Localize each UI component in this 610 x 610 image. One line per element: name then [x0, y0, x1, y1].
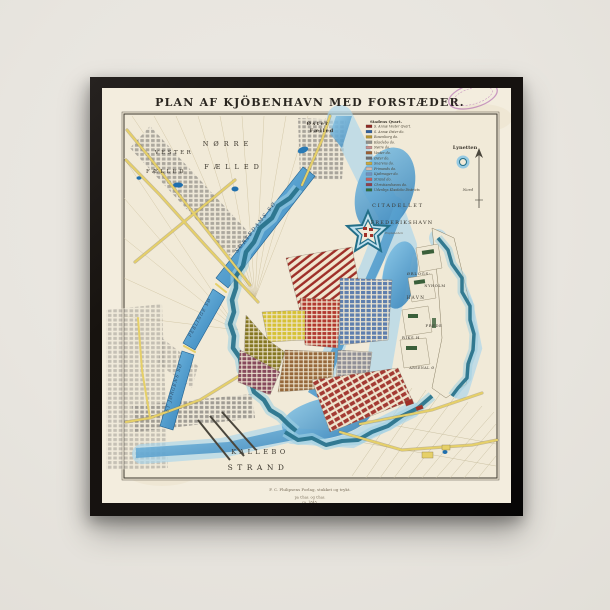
caption-line: F. C. Philipsens Forlag, stukket og tryk…	[269, 487, 350, 492]
legend-swatch	[366, 157, 372, 160]
legend-label: Øster do.	[373, 155, 389, 160]
legend-label: Frimands do.	[373, 167, 396, 171]
map-label: Øster	[307, 120, 330, 127]
map-label: STRAND	[228, 463, 289, 472]
copenhagen-map: Stadens Qvart. S. Annæ Vester Qvart.S. A…	[102, 88, 511, 503]
legend-label: Rosenborg do.	[373, 135, 398, 139]
map-label: CITADELLET	[372, 203, 424, 209]
legend-label: Snarens do.	[374, 162, 394, 166]
map-label: HAVN	[407, 295, 426, 300]
legend-swatch	[366, 189, 372, 192]
picture-frame: Stadens Qvart. S. Annæ Vester Qvart.S. A…	[90, 77, 523, 516]
legend-swatch	[366, 178, 372, 181]
legend-swatch	[366, 136, 372, 139]
legend-label: Vester do.	[374, 151, 391, 155]
map-label: Lynetten	[453, 145, 478, 151]
legend-swatch	[366, 151, 372, 154]
caption-line: ca. 1845.	[302, 501, 318, 504]
wall-background: Stadens Qvart. S. Annæ Vester Qvart.S. A…	[0, 0, 610, 610]
north-label: Nord	[462, 187, 474, 192]
legend-swatch	[366, 141, 372, 144]
map-label: ARSENAL Ø	[408, 365, 434, 370]
map-label: ØRLOGS-	[407, 271, 431, 276]
map-label: VESTER	[154, 150, 194, 156]
legend-header: Stadens Qvart.	[370, 119, 403, 124]
legend-label: S. Annæ Øster do.	[374, 129, 404, 134]
legend-swatch	[366, 162, 372, 165]
legend-swatch	[366, 183, 372, 186]
legend-swatch	[366, 146, 372, 149]
quarter-st-annae-oester	[340, 278, 392, 345]
map-label: FÆLLED	[204, 163, 264, 171]
legend-label: S. Annæ Vester Qvart.	[374, 125, 411, 129]
legend-label: Nørre do.	[373, 146, 390, 150]
lynetten-fort	[457, 156, 470, 169]
map-label: Esplanaden	[384, 231, 403, 235]
quarter-center-red	[300, 298, 340, 348]
legend-swatch	[366, 125, 372, 128]
legend-label: Kjøbmager do.	[373, 172, 398, 176]
legend-label: Strand do.	[374, 178, 392, 182]
legend-label: Christianshavns do.	[374, 183, 407, 187]
legend-label: Klædebo do.	[373, 140, 395, 144]
legend-label: Udenbys Klædebo Districts	[374, 188, 420, 192]
map-label: FREDERIKSHAVN	[371, 220, 434, 226]
legend-swatch	[366, 167, 372, 170]
map-label: FÆLLED	[146, 169, 186, 175]
map-paper: Stadens Qvart. S. Annæ Vester Qvart.S. A…	[102, 88, 511, 503]
map-label: KALLEBO	[231, 448, 288, 456]
map-title: PLAN AF KJÖBENHAVN MED FORSTÆDER.	[155, 95, 465, 109]
caption-line: pa Chas. og Chas.	[295, 496, 326, 500]
legend-swatch	[366, 173, 372, 176]
map-label: RIKS H	[402, 335, 420, 340]
map-label: Fælled	[310, 128, 335, 134]
quarter-yellow	[262, 310, 305, 342]
map-label: FREDE	[425, 323, 442, 328]
map-label: NØRRE	[203, 140, 254, 148]
legend-swatch	[366, 130, 372, 133]
map-label: NYHOLM	[424, 284, 445, 288]
